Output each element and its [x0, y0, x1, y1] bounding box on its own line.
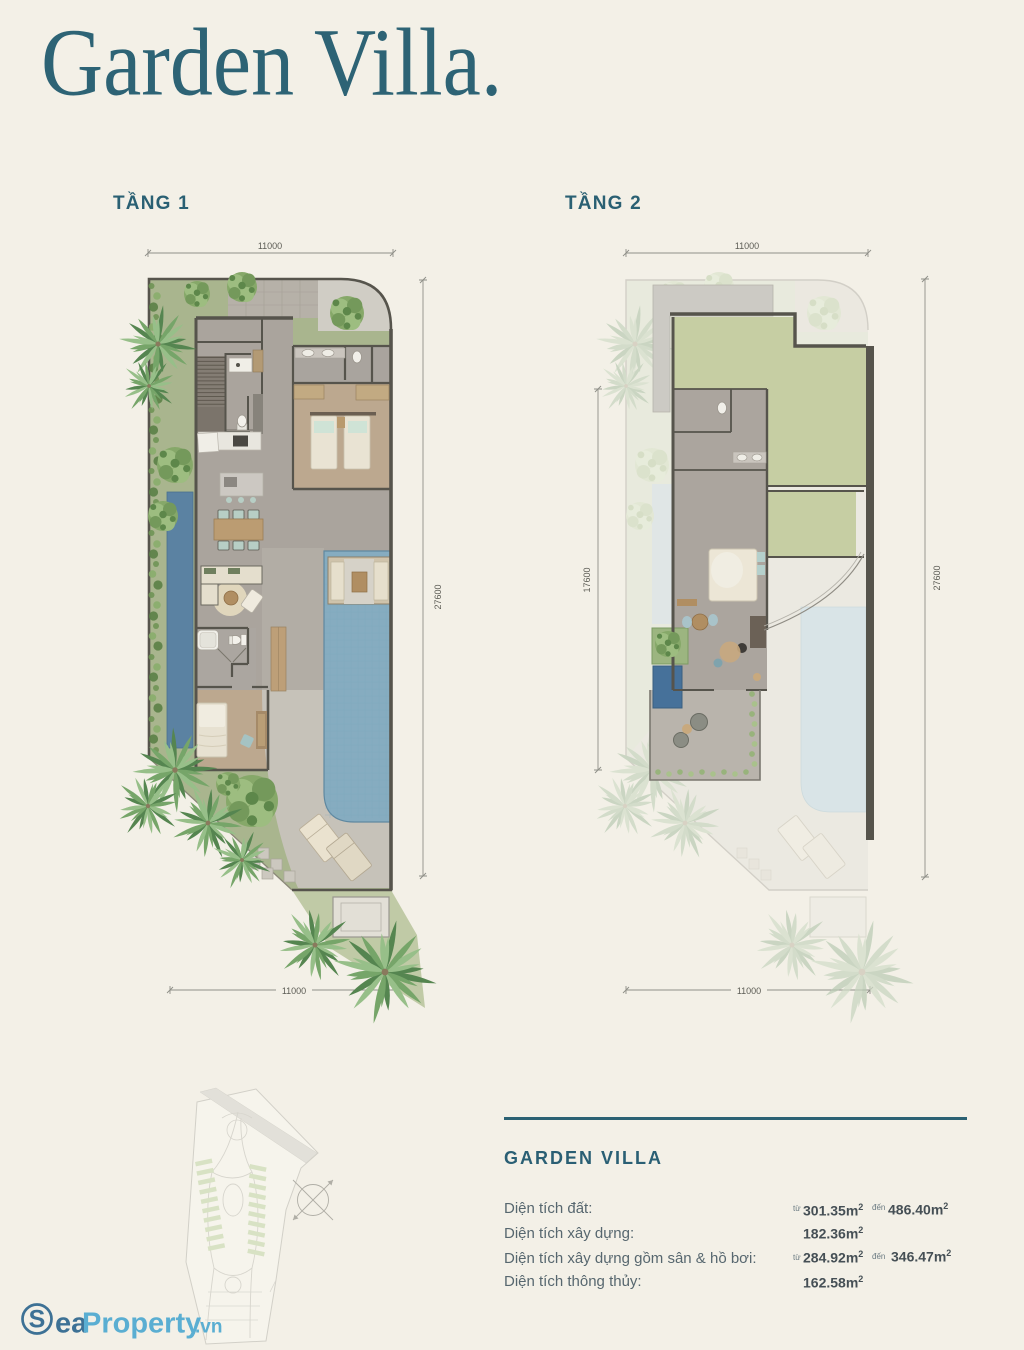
svg-text:27600: 27600	[932, 565, 942, 590]
svg-text:11000: 11000	[282, 986, 306, 996]
svg-text:S: S	[29, 1306, 46, 1334]
svg-text:11000: 11000	[258, 241, 282, 251]
svg-text:11000: 11000	[735, 241, 759, 251]
svg-text:17600: 17600	[582, 567, 592, 592]
svg-text:.vn: .vn	[195, 1317, 222, 1338]
svg-text:27600: 27600	[433, 584, 443, 609]
svg-text:Property: Property	[82, 1308, 201, 1340]
svg-text:11000: 11000	[737, 986, 761, 996]
